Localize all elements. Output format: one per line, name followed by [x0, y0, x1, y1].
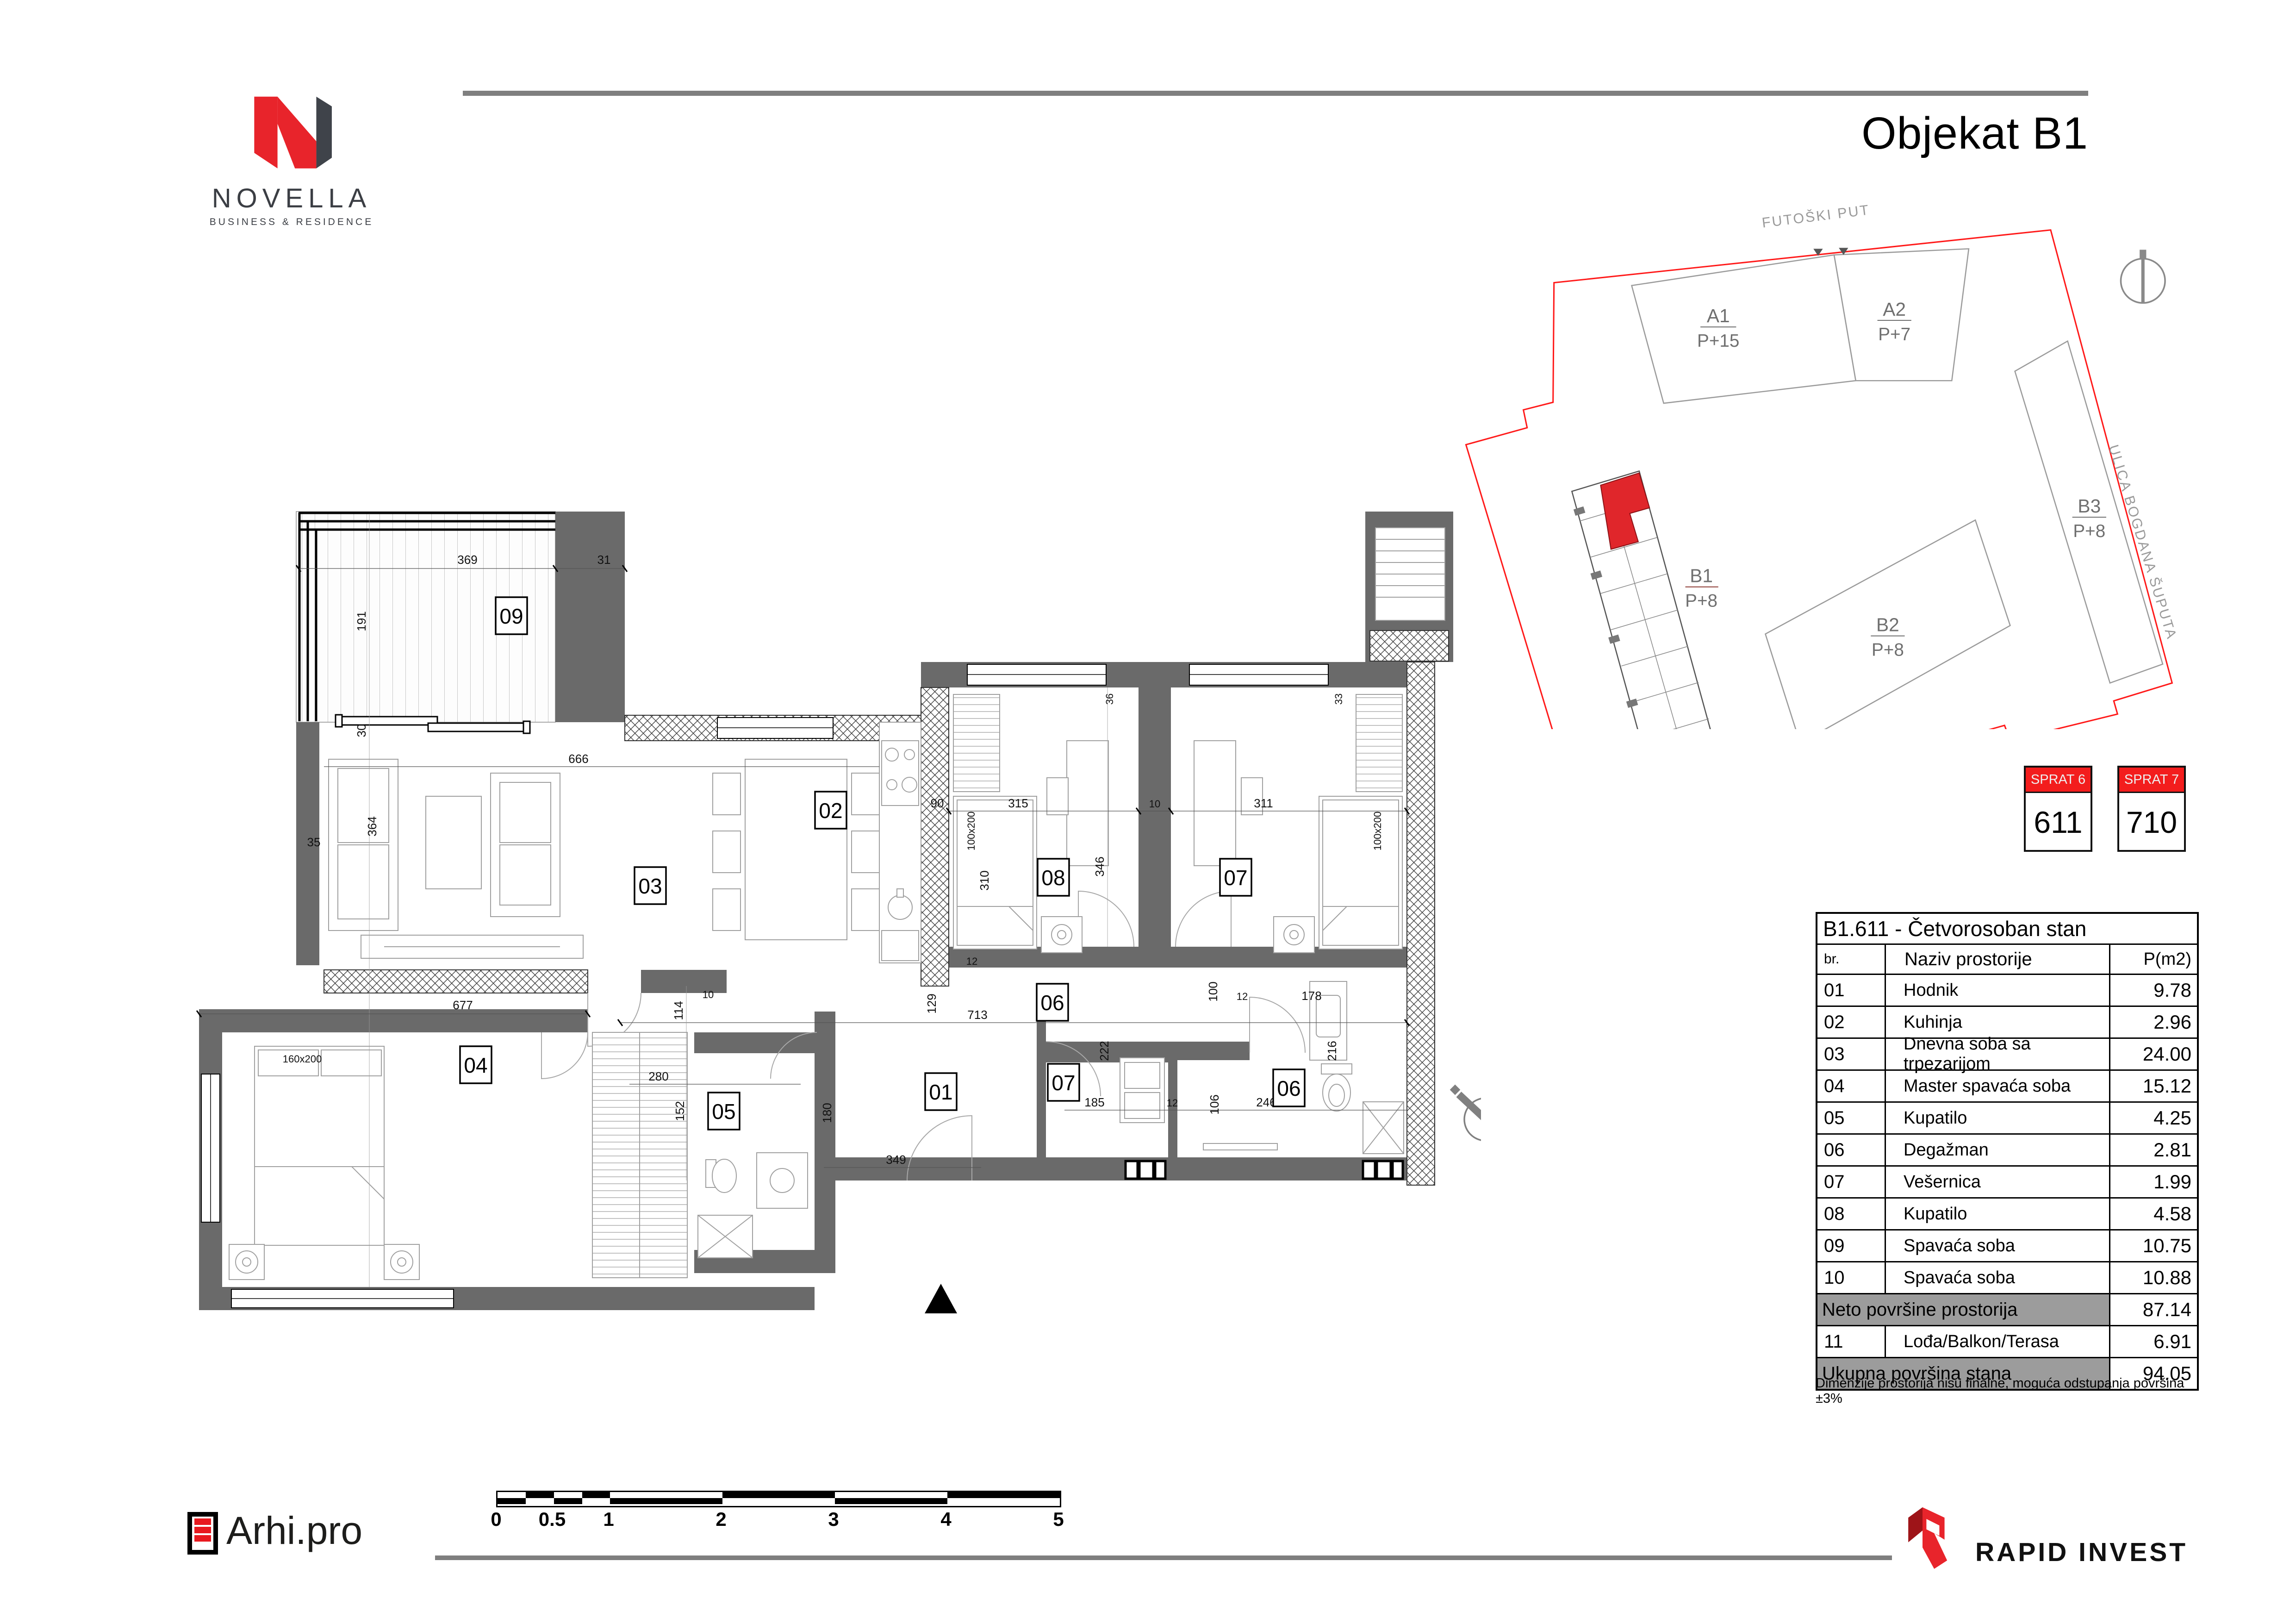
- arhipro-icon: [187, 1512, 218, 1555]
- svg-text:36: 36: [1104, 693, 1115, 705]
- room-label-03: 03: [638, 874, 662, 898]
- table-row: 04Master spavaća soba15.12: [1817, 1069, 2197, 1101]
- brand-name: NOVELLA: [201, 183, 382, 214]
- room-label-07b: 07: [1052, 1071, 1075, 1095]
- label-a1-floors: P+15: [1697, 331, 1739, 351]
- label-a2-floors: P+7: [1878, 325, 1910, 344]
- label-b1-floors: P+8: [1685, 591, 1717, 611]
- svg-text:178: 178: [1301, 989, 1321, 1003]
- table-row: 09Spavaća soba10.75: [1817, 1229, 2197, 1261]
- label-b3-floors: P+8: [2073, 521, 2105, 541]
- svg-text:114: 114: [672, 1001, 685, 1020]
- room-label-04: 04: [464, 1053, 487, 1077]
- svg-text:35: 35: [307, 835, 321, 849]
- table-row: 07Vešernica1.99: [1817, 1165, 2197, 1197]
- room-label-07: 07: [1224, 866, 1247, 890]
- svg-text:185: 185: [1084, 1095, 1104, 1109]
- scale-label: 4: [940, 1508, 951, 1530]
- scale-label: 0: [491, 1508, 501, 1530]
- floor-badge-6-unit: 611: [2026, 793, 2091, 851]
- floor-badge-6: SPRAT 6 611: [2024, 766, 2092, 852]
- table-row: 08Kupatilo4.58: [1817, 1197, 2197, 1229]
- svg-text:666: 666: [568, 752, 588, 766]
- svg-text:10: 10: [703, 989, 714, 1000]
- label-a2: A2: [1883, 299, 1906, 320]
- svg-text:315: 315: [1008, 796, 1028, 810]
- room-label-06: 06: [1040, 991, 1064, 1015]
- col-num: br.: [1817, 945, 1886, 974]
- svg-text:280: 280: [648, 1069, 668, 1083]
- floor-badge-7-unit: 710: [2119, 793, 2184, 851]
- net-area-row: Neto površine prostorija 87.14: [1817, 1293, 2197, 1325]
- svg-text:677: 677: [453, 998, 473, 1012]
- room-label-06b: 06: [1277, 1076, 1300, 1100]
- scale-label: 1: [603, 1508, 614, 1530]
- svg-text:100: 100: [1206, 981, 1220, 1001]
- svg-text:713: 713: [967, 1008, 987, 1022]
- table-row-11: 11 Lođa/Balkon/Terasa 6.91: [1817, 1325, 2197, 1357]
- svg-text:106: 106: [1207, 1094, 1221, 1114]
- svg-text:160x200: 160x200: [283, 1053, 322, 1065]
- floor-badge-7-header: SPRAT 7: [2119, 768, 2184, 793]
- label-b2: B2: [1876, 614, 1899, 635]
- svg-text:10: 10: [1149, 798, 1160, 810]
- room-label-05: 05: [712, 1099, 735, 1124]
- col-name: Naziv prostorije: [1886, 945, 2109, 974]
- header-rule: [463, 91, 2088, 96]
- svg-text:90: 90: [931, 796, 944, 810]
- svg-text:364: 364: [365, 816, 379, 836]
- novella-logo-icon: [241, 83, 342, 176]
- svg-text:349: 349: [886, 1153, 906, 1167]
- table-header: br. Naziv prostorije P(m2): [1817, 943, 2197, 974]
- svg-text:222: 222: [1097, 1041, 1111, 1061]
- table-row: 02Kuhinja2.96: [1817, 1006, 2197, 1037]
- svg-text:180: 180: [820, 1103, 834, 1123]
- rapidinvest-icon: [1903, 1503, 1968, 1572]
- floor-badge-7: SPRAT 7 710: [2117, 766, 2186, 852]
- label-b2-floors: P+8: [1872, 640, 1904, 660]
- plan-compass-icon: [1450, 1085, 1481, 1141]
- entrance-arrow: [925, 1284, 957, 1313]
- table-note: Dimenzije prostorija nisu finalne, moguć…: [1816, 1376, 2214, 1406]
- svg-text:12: 12: [966, 956, 977, 967]
- room-label-08: 08: [1041, 866, 1065, 890]
- svg-text:311: 311: [1254, 796, 1273, 810]
- svg-text:369: 369: [457, 553, 477, 567]
- label-b3: B3: [2078, 495, 2101, 517]
- svg-text:152: 152: [673, 1101, 687, 1121]
- room-table: B1.611 - Četvorosoban stan br. Naziv pro…: [1816, 912, 2199, 1391]
- building-a1: [1632, 255, 1856, 403]
- arhipro-wordmark: Arhi.pro: [226, 1508, 362, 1553]
- svg-text:12: 12: [1237, 991, 1248, 1002]
- svg-text:33: 33: [1333, 693, 1344, 705]
- scale-label: 0.5: [539, 1508, 566, 1530]
- brand-tagline: BUSINESS & RESIDENCE: [201, 217, 382, 228]
- svg-text:30: 30: [355, 724, 368, 737]
- site-plan: FUTOŠKI PUT ULICA BOGDANA ŠUPUTA DUBROVA…: [1456, 183, 2215, 729]
- scale-label: 3: [828, 1508, 839, 1530]
- svg-text:191: 191: [355, 611, 368, 631]
- room-label-01: 01: [929, 1080, 952, 1104]
- svg-text:100x200: 100x200: [1372, 812, 1383, 850]
- table-row: 03Dnevna soba sa trpezarijom24.00: [1817, 1037, 2197, 1069]
- room-label-02: 02: [819, 799, 842, 823]
- svg-text:346: 346: [1093, 856, 1107, 876]
- svg-text:129: 129: [925, 993, 939, 1013]
- room-label-09: 09: [499, 604, 523, 628]
- label-b1: B1: [1690, 565, 1713, 587]
- svg-text:12: 12: [1167, 1097, 1178, 1109]
- apartment-floor-plan: 369 31 191 30 666 364 35 90 310 315 10 3…: [185, 500, 1481, 1324]
- svg-text:216: 216: [1325, 1041, 1339, 1061]
- floorplan-sheet: { "header": { "title": "Objekat B1", "br…: [0, 0, 2296, 1624]
- scale-label: 5: [1053, 1508, 1064, 1530]
- col-area: P(m2): [2109, 945, 2197, 974]
- scale-label: 2: [716, 1508, 726, 1530]
- floor-badge-6-header: SPRAT 6: [2026, 768, 2091, 793]
- table-row: 10Spavaća soba10.88: [1817, 1261, 2197, 1293]
- svg-text:100x200: 100x200: [965, 812, 977, 850]
- table-row: 01Hodnik9.78: [1817, 974, 2197, 1006]
- footer-rule: [435, 1555, 1892, 1560]
- scale-bar: [496, 1491, 1061, 1507]
- table-title: B1.611 - Četvorosoban stan: [1817, 914, 2086, 943]
- table-row: 06Degažman2.81: [1817, 1133, 2197, 1165]
- rapidinvest-wordmark: RAPID INVEST: [1975, 1537, 2188, 1568]
- north-compass-icon: [2121, 250, 2165, 303]
- label-a1: A1: [1707, 305, 1730, 326]
- page-title: Objekat B1: [1527, 107, 2088, 159]
- svg-text:310: 310: [977, 870, 991, 890]
- street-futoski-put: FUTOŠKI PUT: [1761, 201, 1871, 231]
- table-row: 05Kupatilo4.25: [1817, 1101, 2197, 1133]
- svg-text:31: 31: [597, 553, 611, 567]
